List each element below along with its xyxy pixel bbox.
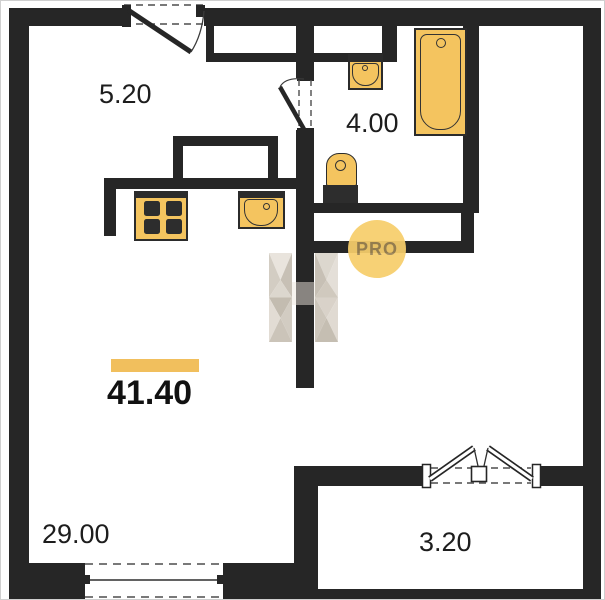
washbasin-drain (362, 65, 368, 71)
wall-balcony-bottom (318, 589, 601, 600)
window-post-left (75, 563, 85, 599)
living-area-label: 29.00 (42, 521, 110, 548)
wall-balcony-top-left (294, 466, 423, 486)
wall-bottom-mid (233, 563, 296, 600)
hall-area-label: 5.20 (99, 81, 152, 108)
balcony-area-label: 3.20 (419, 529, 472, 556)
bathroom-door-leaf (280, 87, 305, 131)
balcony-door-handle-box (472, 467, 487, 482)
kitchen-sink-drain (263, 203, 270, 210)
wall-top-right (204, 8, 601, 26)
wall-right (583, 8, 601, 600)
logo-center-square (292, 282, 315, 305)
washbasin (348, 54, 383, 90)
wall-balcony-top-right (541, 466, 601, 486)
bathroom-door (280, 79, 311, 131)
stove-burner (144, 219, 160, 234)
total-area-label: 41.40 (107, 376, 192, 410)
entrance-door-leaf (128, 10, 191, 52)
total-area-highlight-bar (111, 359, 199, 372)
pro-badge-text: PRO (356, 239, 398, 260)
balcony-door-post-right (533, 465, 541, 488)
kitchen-sink (238, 191, 285, 229)
wall-niche-left-stub (206, 26, 214, 53)
wall-left (9, 8, 29, 600)
toilet-drain (335, 160, 346, 171)
window-post-right (223, 563, 233, 599)
balcony-door-tie-left (474, 448, 478, 466)
bath-door-hinge-bottom (297, 128, 314, 139)
bathroom-area-label: 4.00 (346, 110, 399, 137)
wall-niche-right-stub (382, 26, 397, 53)
balcony-door-post-left (423, 465, 431, 488)
wardrobe-outline (173, 136, 278, 189)
logo-left-bar (269, 253, 292, 342)
wall-kitchen-stub (104, 178, 116, 236)
wall-bottom-left (9, 563, 79, 600)
window (83, 564, 224, 597)
bathtub-inner (420, 34, 461, 130)
balcony-french-door (423, 448, 541, 488)
stove-burner (166, 219, 182, 234)
floor-plan: PRO 5.20 4.00 29.00 3.20 41.40 (0, 0, 605, 600)
balcony-door-tie-right (484, 448, 488, 466)
wall-duct-right (461, 213, 474, 241)
bathtub-drain (436, 38, 446, 48)
toilet-cistern (323, 185, 358, 203)
developer-logo-watermark (261, 248, 346, 348)
bath-door-hinge-top (297, 71, 314, 81)
stove (134, 191, 188, 241)
toilet-bowl (326, 153, 357, 186)
kitchen-sink-basin (244, 199, 278, 226)
entrance-door (122, 5, 205, 52)
stove-burner (144, 201, 160, 216)
entrance-door-swing-arc (191, 11, 204, 52)
logo-right-bar (315, 253, 338, 342)
wall-bathroom-bottom (314, 203, 479, 213)
bathtub (414, 28, 467, 136)
pro-badge-watermark: PRO (348, 220, 406, 278)
stove-burner (166, 201, 182, 216)
wall-balcony-left (294, 466, 318, 600)
